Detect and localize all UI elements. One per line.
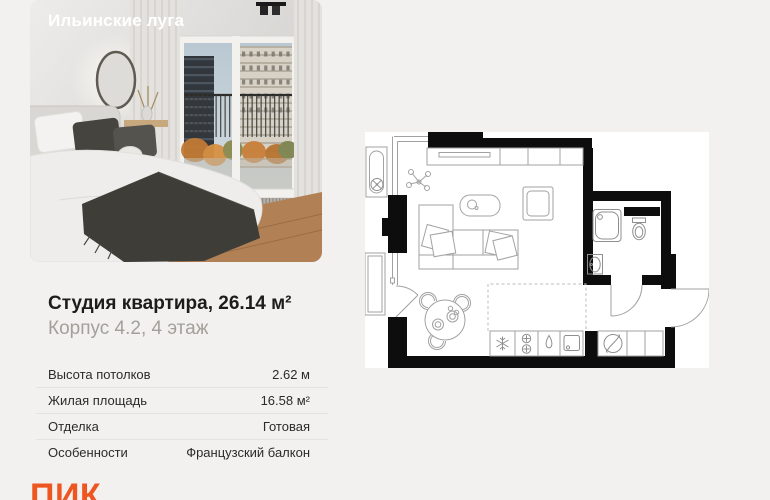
armchair bbox=[523, 187, 553, 220]
round-mirror bbox=[97, 52, 135, 108]
spec-label: Жилая площадь bbox=[48, 393, 147, 408]
apartment-subtitle: Корпус 4.2, 4 этаж bbox=[48, 318, 208, 340]
spec-row-ceiling-height: Высота потолков 2.62 м bbox=[36, 362, 328, 388]
kitchen-zone-dashed bbox=[488, 284, 586, 331]
pik-logo[interactable]: ПИК bbox=[30, 477, 101, 500]
dining-table bbox=[420, 293, 471, 350]
bathroom bbox=[588, 210, 646, 317]
apartment-photo[interactable]: Ильинские луга bbox=[30, 0, 322, 262]
spec-row-living-area: Жилая площадь 16.58 м² bbox=[36, 388, 328, 414]
floor-plan[interactable] bbox=[365, 132, 709, 368]
balcony-bay-box bbox=[365, 253, 385, 315]
spec-label: Особенности bbox=[48, 445, 128, 460]
spec-value: 16.58 м² bbox=[261, 393, 310, 408]
wardrobe bbox=[427, 148, 583, 165]
listing-page: Ильинские луга Студия квартира, 26.14 м²… bbox=[0, 0, 770, 500]
balcony-radiator-box bbox=[366, 147, 387, 197]
apartment-title: Студия квартира, 26.14 м² bbox=[48, 293, 291, 315]
entrance-door bbox=[671, 289, 709, 327]
project-name-label: Ильинские луга bbox=[48, 11, 184, 31]
hallway-cabinets bbox=[598, 331, 663, 356]
spec-value: 2.62 м bbox=[272, 367, 310, 382]
plant-icon bbox=[407, 170, 431, 191]
kitchen-counter bbox=[490, 331, 583, 356]
spec-label: Отделка bbox=[48, 419, 99, 434]
sofa bbox=[419, 205, 518, 269]
spec-row-finishing: Отделка Готовая bbox=[36, 414, 328, 440]
specs-table: Высота потолков 2.62 м Жилая площадь 16.… bbox=[36, 362, 328, 465]
bathroom-door bbox=[611, 285, 642, 316]
balcony-door bbox=[396, 286, 418, 317]
spec-value: Французский балкон bbox=[186, 445, 310, 460]
spec-value: Готовая bbox=[263, 419, 310, 434]
coffee-table bbox=[460, 195, 500, 216]
bedroom-photo-illustration bbox=[30, 0, 322, 262]
shower bbox=[593, 210, 621, 242]
radiator-fan-icon bbox=[371, 179, 383, 191]
spec-label: Высота потолков bbox=[48, 367, 151, 382]
spec-row-features: Особенности Французский балкон bbox=[36, 440, 328, 465]
toilet-icon bbox=[633, 218, 646, 240]
